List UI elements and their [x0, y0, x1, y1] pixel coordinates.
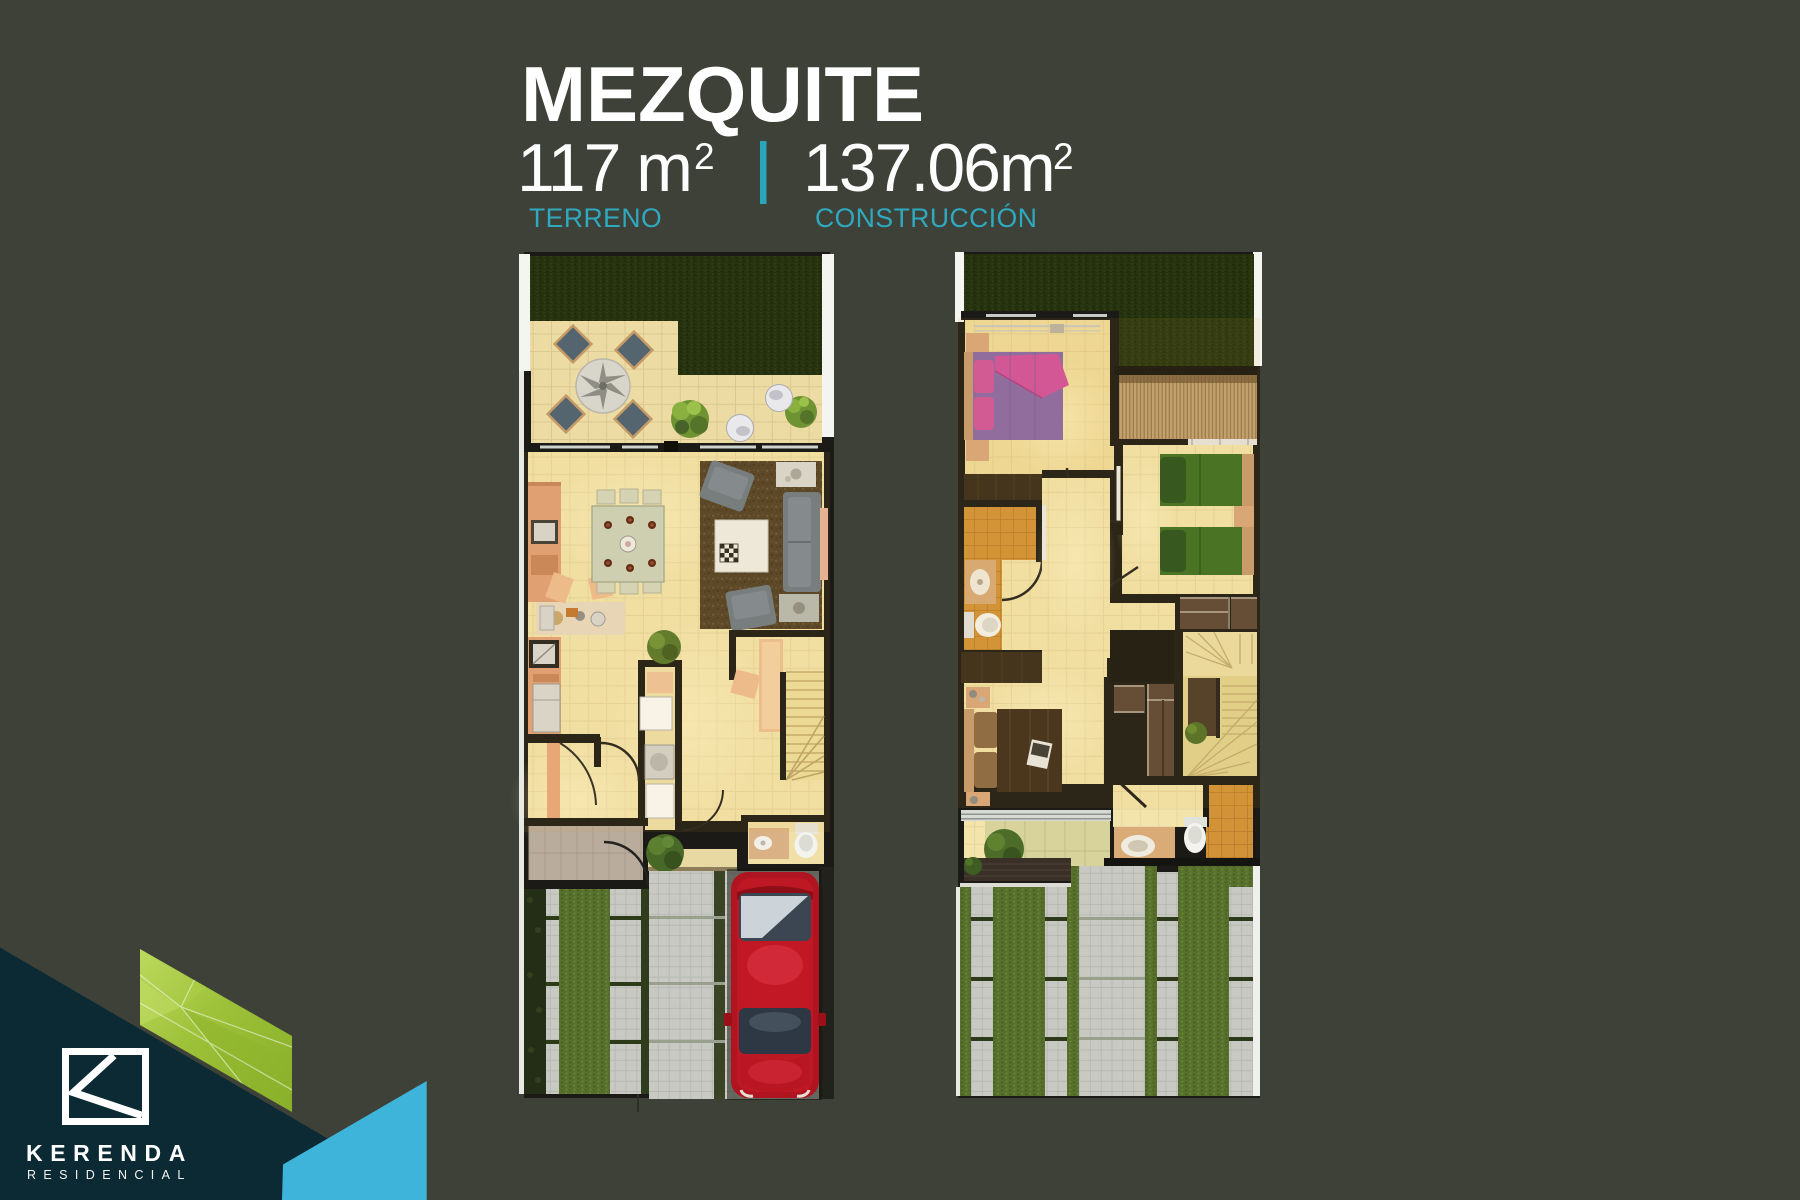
svg-text:RESIDENCIAL: RESIDENCIAL [27, 1168, 192, 1182]
svg-text:117 m: 117 m [517, 130, 691, 206]
svg-text:2: 2 [694, 136, 715, 177]
svg-text:137.06m: 137.06m [803, 130, 1054, 206]
svg-text:2: 2 [1053, 136, 1074, 177]
svg-text:CONSTRUCCIÓN: CONSTRUCCIÓN [815, 203, 1037, 233]
svg-text:MEZQUITE: MEZQUITE [521, 50, 924, 138]
svg-text:TERRENO: TERRENO [529, 203, 662, 233]
svg-text:KERENDA: KERENDA [26, 1140, 193, 1166]
